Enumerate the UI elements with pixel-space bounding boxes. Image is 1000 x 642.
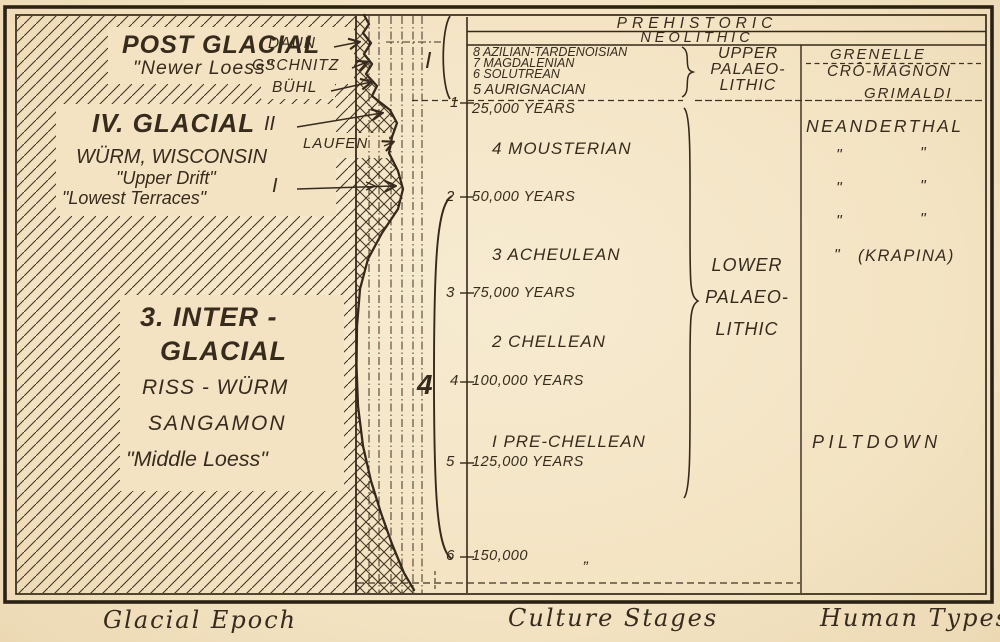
ditto-mark: " <box>920 146 926 163</box>
stage-solutrean: 6 SOLUTREAN <box>473 68 560 81</box>
lower-palaeolithic-line3: LITHIC <box>692 320 802 339</box>
diagram-page: PREHISTORIC NEOLITHIC 8 AZILIAN-TARDENOI… <box>0 0 1000 642</box>
stadial-gschnitz: GSCHNITZ <box>252 58 339 74</box>
interglacial-line1: 3. INTER - <box>140 303 278 331</box>
stadial-roman-two: II <box>264 114 275 135</box>
human-grimaldi: GRIMALDI <box>864 86 953 102</box>
ditto-mark: " <box>834 248 840 265</box>
human-grenelle: GRENELLE <box>830 47 926 63</box>
years-75000: 75,000 YEARS <box>472 286 575 301</box>
caption-culture-stages: Culture Stages <box>508 606 718 631</box>
tick-number-3: 3 <box>446 285 454 301</box>
fourth-glacial-title: IV. GLACIAL <box>92 110 255 137</box>
timeline-roman-one: I <box>425 48 431 72</box>
stage-acheulean: 3 ACHEULEAN <box>492 246 620 264</box>
timeline-big-four: 4 <box>417 370 433 399</box>
human-krapina: (KRAPINA) <box>858 248 955 265</box>
stage-chellean: 2 CHELLEAN <box>492 333 606 351</box>
tick-number-4: 4 <box>450 373 458 389</box>
ditto-mark: " <box>920 212 926 229</box>
years-100000: 100,000 YEARS <box>472 374 584 389</box>
stage-prechellean: I PRE-CHELLEAN <box>492 433 646 451</box>
interglacial-line3: RISS - WÜRM <box>142 377 288 399</box>
lower-palaeolithic-line2: PALAEO- <box>692 288 802 307</box>
human-cro-magnon: CRÔ-MAGNON <box>827 64 951 80</box>
stadial-daun: DAUN <box>268 36 316 52</box>
ditto-mark: " <box>836 181 842 198</box>
tick-number-6: 6 <box>446 548 454 564</box>
ditto-mark-low: „ <box>584 551 589 568</box>
fourth-glacial-line1: WÜRM, WISCONSIN <box>76 147 267 168</box>
stage-mousterian: 4 MOUSTERIAN <box>492 140 632 158</box>
years-125000: 125,000 YEARS <box>472 455 584 470</box>
ditto-mark: " <box>920 179 926 196</box>
fourth-glacial-line2: "Upper Drift" <box>116 169 216 188</box>
interglacial-line5: "Middle Loess" <box>126 448 268 471</box>
tick-number-2: 2 <box>446 189 454 205</box>
stadial-laufen: LAUFEN <box>303 136 368 152</box>
lower-palaeolithic-line1: LOWER <box>692 256 802 275</box>
stadial-roman-one: I <box>272 176 278 197</box>
tick-number-1: 1 <box>450 95 458 111</box>
interglacial-line2: GLACIAL <box>160 337 287 365</box>
stage-aurignacian: 5 AURIGNACIAN <box>473 83 585 98</box>
tick-number-5: 5 <box>446 454 454 470</box>
years-150000: 150,000 <box>472 549 528 564</box>
ditto-mark: " <box>836 148 842 165</box>
caption-human-types: Human Types <box>820 606 1000 631</box>
header-neolithic: NEOLITHIC <box>467 31 927 46</box>
human-piltdown: PILTDOWN <box>812 433 942 452</box>
years-50000: 50,000 YEARS <box>472 190 575 205</box>
caption-glacial-epoch: Glacial Epoch <box>103 608 297 633</box>
interglacial-line4: SANGAMON <box>148 413 287 435</box>
human-neanderthal: NEANDERTHAL <box>806 117 964 135</box>
years-25000: 25,000 YEARS <box>472 102 575 117</box>
upper-palaeolithic-line3: LITHIC <box>700 78 796 95</box>
fourth-glacial-line3: "Lowest Terraces" <box>62 189 206 208</box>
ditto-mark: " <box>836 214 842 231</box>
stadial-buhl: BÜHL <box>272 80 317 96</box>
